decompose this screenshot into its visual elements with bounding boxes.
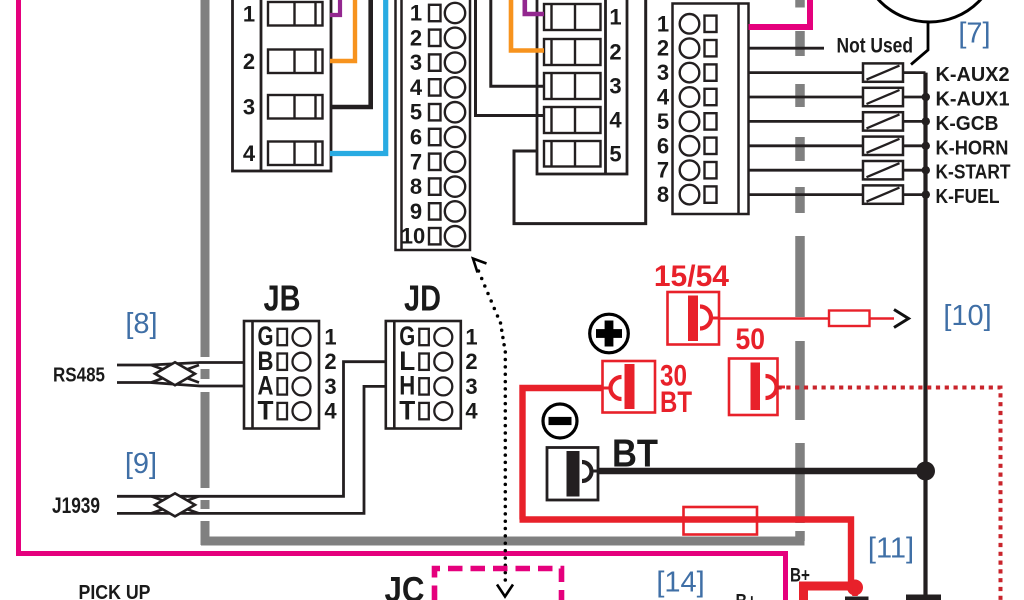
svg-text:[7]: [7] xyxy=(958,18,990,50)
svg-text:7: 7 xyxy=(410,149,422,174)
svg-text:3: 3 xyxy=(609,74,621,99)
svg-text:[8]: [8] xyxy=(125,308,157,340)
svg-text:3: 3 xyxy=(465,374,477,399)
svg-text:4: 4 xyxy=(657,85,670,110)
svg-text:3: 3 xyxy=(324,374,336,399)
svg-text:BT: BT xyxy=(660,386,692,419)
svg-text:1: 1 xyxy=(243,1,255,26)
svg-text:J1939: J1939 xyxy=(52,493,100,518)
svg-text:K-HORN: K-HORN xyxy=(936,137,1009,159)
svg-text:K-START: K-START xyxy=(936,162,1011,184)
svg-text:15/54: 15/54 xyxy=(654,260,729,293)
svg-text:4: 4 xyxy=(465,399,478,424)
svg-text:5: 5 xyxy=(410,100,422,125)
svg-text:[11]: [11] xyxy=(868,533,914,565)
svg-text:8: 8 xyxy=(657,182,669,207)
svg-text:[14]: [14] xyxy=(656,567,704,599)
svg-text:K-AUX1: K-AUX1 xyxy=(936,89,1010,111)
svg-text:1: 1 xyxy=(410,1,422,26)
svg-text:PICK UP: PICK UP xyxy=(79,582,151,600)
svg-text:3: 3 xyxy=(657,60,669,85)
svg-text:50: 50 xyxy=(736,323,766,356)
svg-text:3: 3 xyxy=(243,94,255,119)
svg-text:2: 2 xyxy=(324,349,336,374)
svg-text:JC: JC xyxy=(385,571,425,600)
svg-text:1: 1 xyxy=(609,5,621,30)
svg-text:2: 2 xyxy=(243,49,255,74)
svg-text:1: 1 xyxy=(465,325,477,350)
svg-text:4: 4 xyxy=(324,399,337,424)
svg-text:[9]: [9] xyxy=(125,448,157,480)
svg-text:2: 2 xyxy=(465,349,477,374)
svg-text:9: 9 xyxy=(410,199,422,224)
svg-text:K-FUEL: K-FUEL xyxy=(936,186,1000,208)
svg-text:4: 4 xyxy=(609,108,622,133)
svg-text:RS485: RS485 xyxy=(53,365,105,387)
svg-text:4: 4 xyxy=(243,141,256,166)
svg-text:3: 3 xyxy=(410,50,422,75)
svg-text:2: 2 xyxy=(410,25,422,50)
svg-text:1: 1 xyxy=(324,325,336,350)
svg-text:6: 6 xyxy=(657,133,669,158)
svg-text:JD: JD xyxy=(404,278,441,319)
svg-text:K-AUX2: K-AUX2 xyxy=(936,64,1010,86)
svg-text:5: 5 xyxy=(657,109,669,134)
svg-text:2: 2 xyxy=(657,36,669,61)
svg-text:K-GCB: K-GCB xyxy=(936,113,999,135)
svg-text:T: T xyxy=(399,395,415,425)
svg-text:JB: JB xyxy=(264,278,301,319)
svg-text:7: 7 xyxy=(657,158,669,183)
svg-text:B+: B+ xyxy=(736,592,757,600)
svg-text:6: 6 xyxy=(410,125,422,150)
svg-text:[10]: [10] xyxy=(943,300,991,332)
svg-text:8: 8 xyxy=(410,174,422,199)
svg-text:10: 10 xyxy=(401,224,425,249)
svg-text:1: 1 xyxy=(657,11,669,36)
svg-text:2: 2 xyxy=(609,40,621,65)
svg-text:Not Used: Not Used xyxy=(837,35,914,58)
svg-text:4: 4 xyxy=(410,75,423,100)
svg-text:5: 5 xyxy=(609,141,621,166)
svg-text:B+: B+ xyxy=(790,566,810,587)
svg-text:T: T xyxy=(258,395,274,425)
